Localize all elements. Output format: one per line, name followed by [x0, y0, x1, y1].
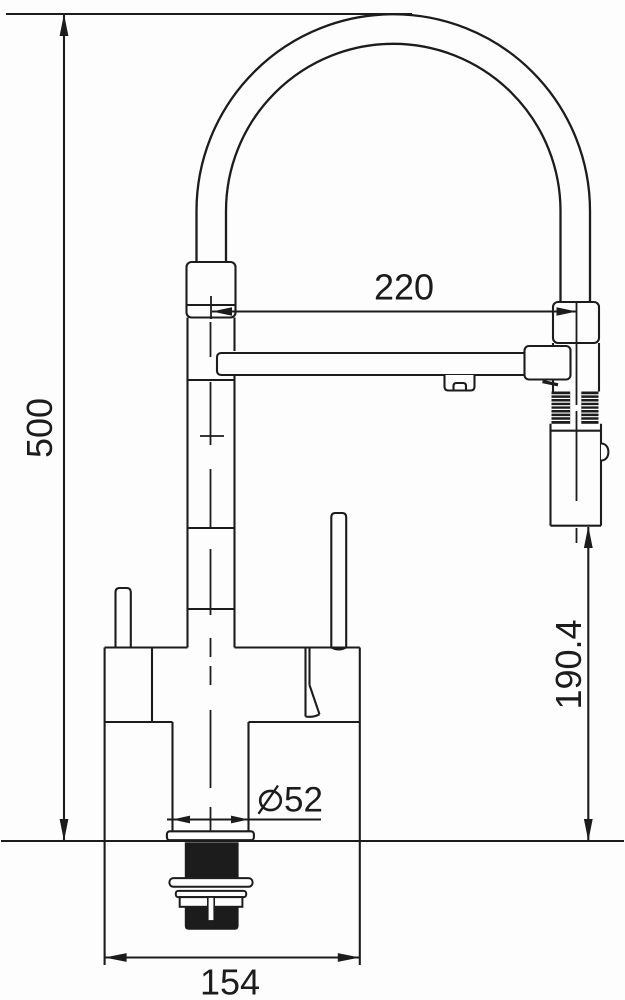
svg-text:52: 52 — [284, 781, 323, 820]
svg-text:220: 220 — [374, 267, 434, 308]
svg-text:190.4: 190.4 — [548, 619, 589, 709]
svg-text:154: 154 — [200, 962, 260, 1000]
svg-text:500: 500 — [19, 398, 60, 458]
